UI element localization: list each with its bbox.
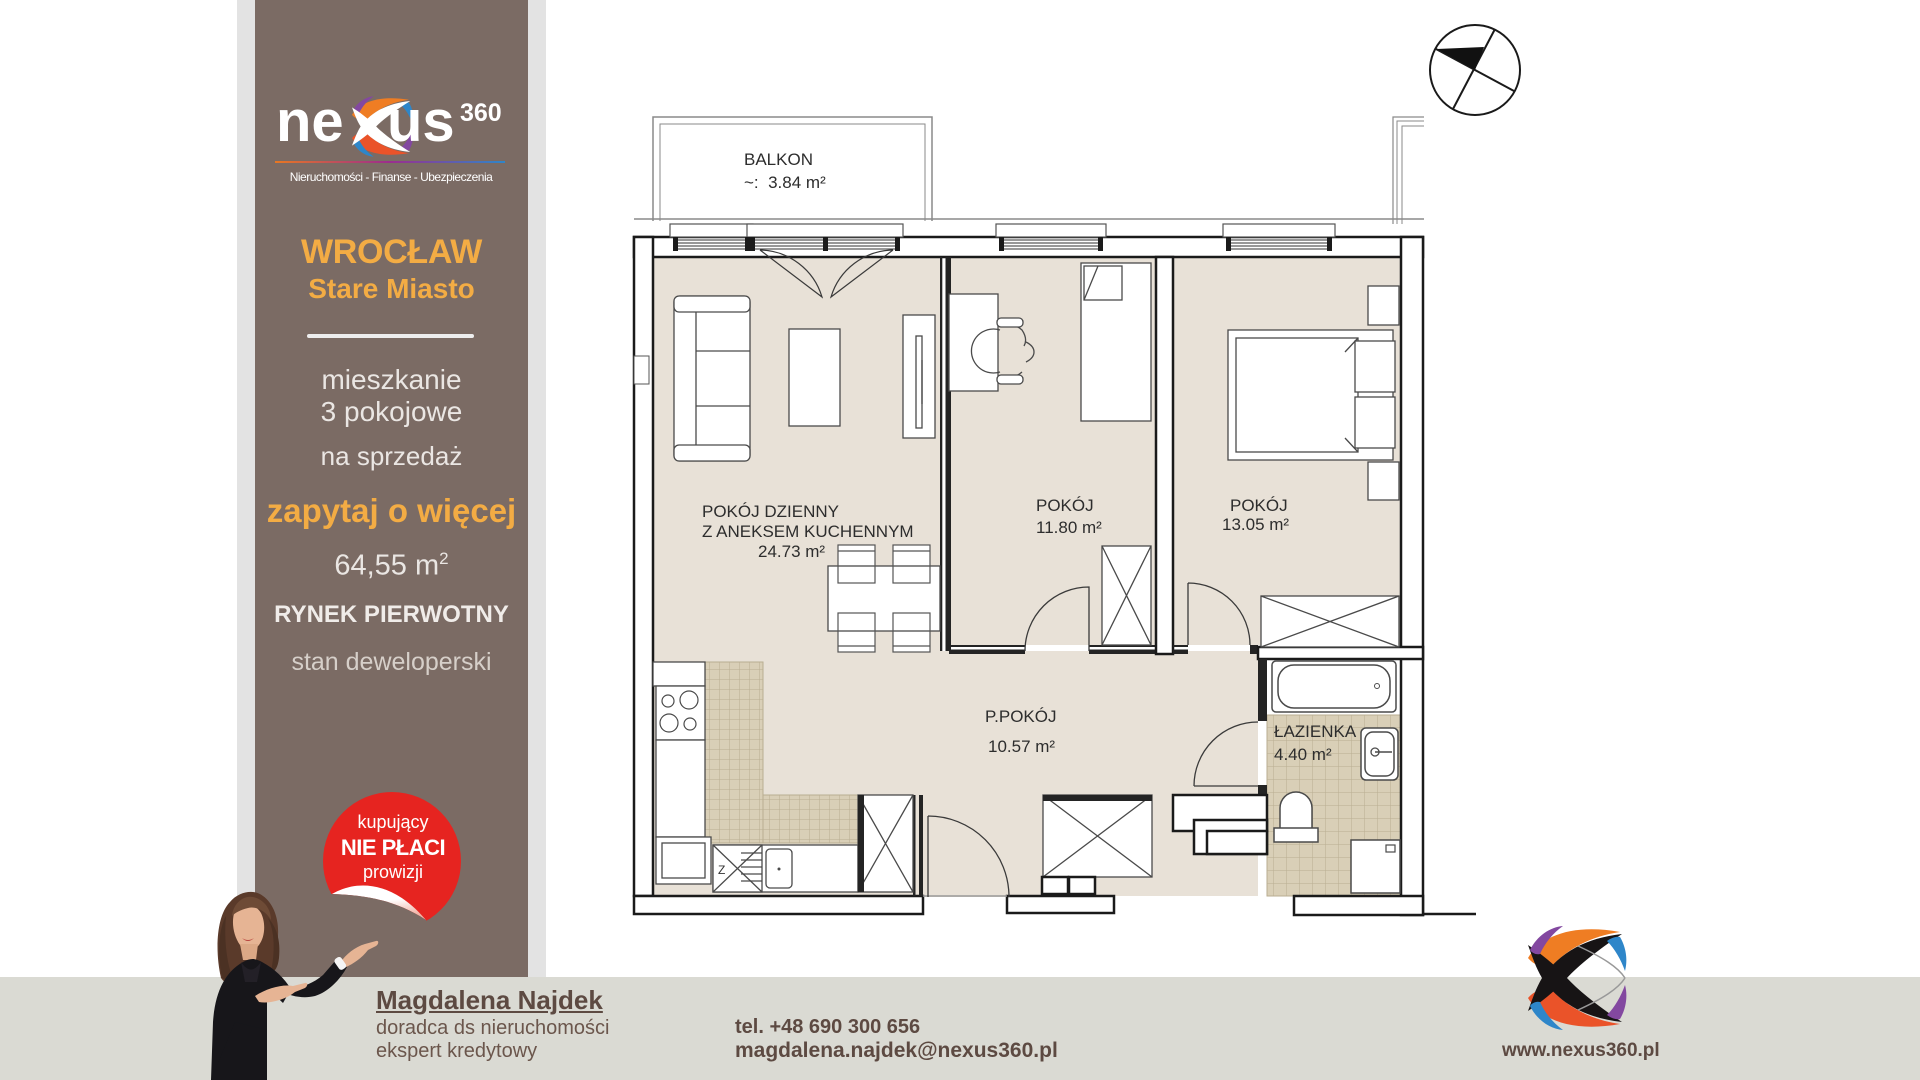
svg-text:13.05 m²: 13.05 m²	[1222, 515, 1289, 534]
svg-text:Z: Z	[718, 863, 725, 877]
svg-text:Nieruchomości - Finanse - Ubez: Nieruchomości - Finanse - Ubezpieczenia	[290, 170, 493, 184]
svg-text:360: 360	[460, 99, 502, 127]
svg-text:ŁAZIENKA: ŁAZIENKA	[1274, 722, 1357, 741]
svg-text:POKÓJ DZIENNY: POKÓJ DZIENNY	[702, 502, 839, 521]
svg-text:prowizji: prowizji	[363, 862, 423, 882]
svg-text:4.40 m²: 4.40 m²	[1274, 745, 1332, 764]
svg-text:BALKON: BALKON	[744, 150, 813, 169]
svg-text:11.80 m²: 11.80 m²	[1036, 518, 1102, 537]
svg-text:us: us	[387, 89, 455, 154]
svg-text:kupujący: kupujący	[357, 812, 428, 832]
svg-text:24.73 m²: 24.73 m²	[758, 542, 825, 561]
svg-text:POKÓJ: POKÓJ	[1230, 496, 1288, 515]
svg-text:NIE PŁACI: NIE PŁACI	[341, 835, 445, 860]
svg-text:P.POKÓJ: P.POKÓJ	[985, 707, 1057, 726]
svg-text:POKÓJ: POKÓJ	[1036, 496, 1094, 515]
svg-text:~: 3.84 m²: ~: 3.84 m²	[744, 173, 826, 192]
svg-text:Z ANEKSEM KUCHENNYM: Z ANEKSEM KUCHENNYM	[702, 522, 914, 541]
svg-text:ne: ne	[276, 89, 344, 154]
svg-text:10.57 m²: 10.57 m²	[988, 737, 1055, 756]
